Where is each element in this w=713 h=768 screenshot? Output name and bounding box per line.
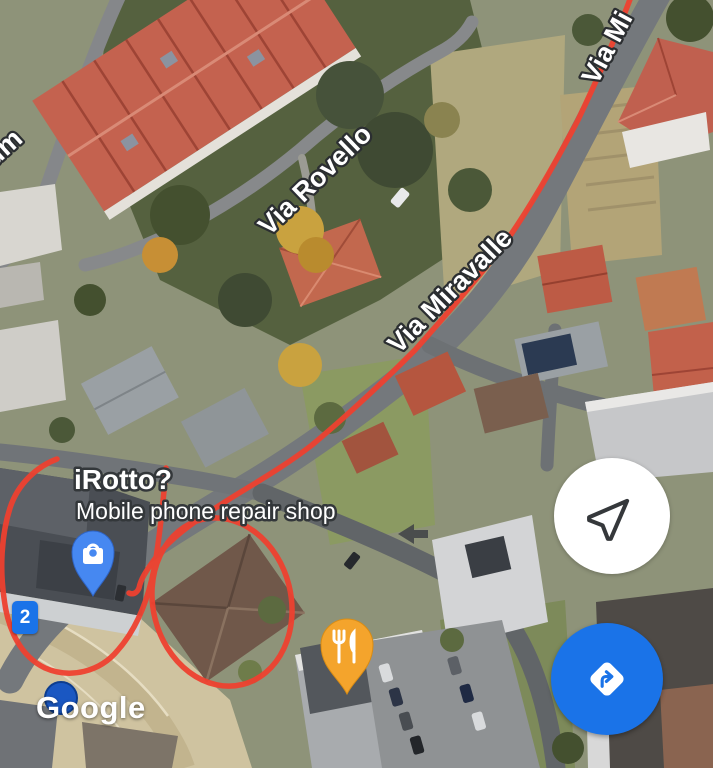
poi-title[interactable]: iRotto?: [74, 464, 172, 495]
google-watermark: Google: [36, 688, 146, 728]
route-badge: 2: [12, 601, 38, 634]
navigation-arrow-icon: [585, 489, 639, 543]
directions-icon: [578, 650, 636, 708]
poi-category[interactable]: Mobile phone repair shop: [76, 498, 336, 524]
locate-button[interactable]: [554, 458, 670, 574]
directions-button[interactable]: [551, 623, 663, 735]
google-logo: Google: [36, 690, 146, 726]
map-viewport[interactable]: um Via Rovello Via Miravalle Via Mi iRot…: [0, 0, 713, 768]
